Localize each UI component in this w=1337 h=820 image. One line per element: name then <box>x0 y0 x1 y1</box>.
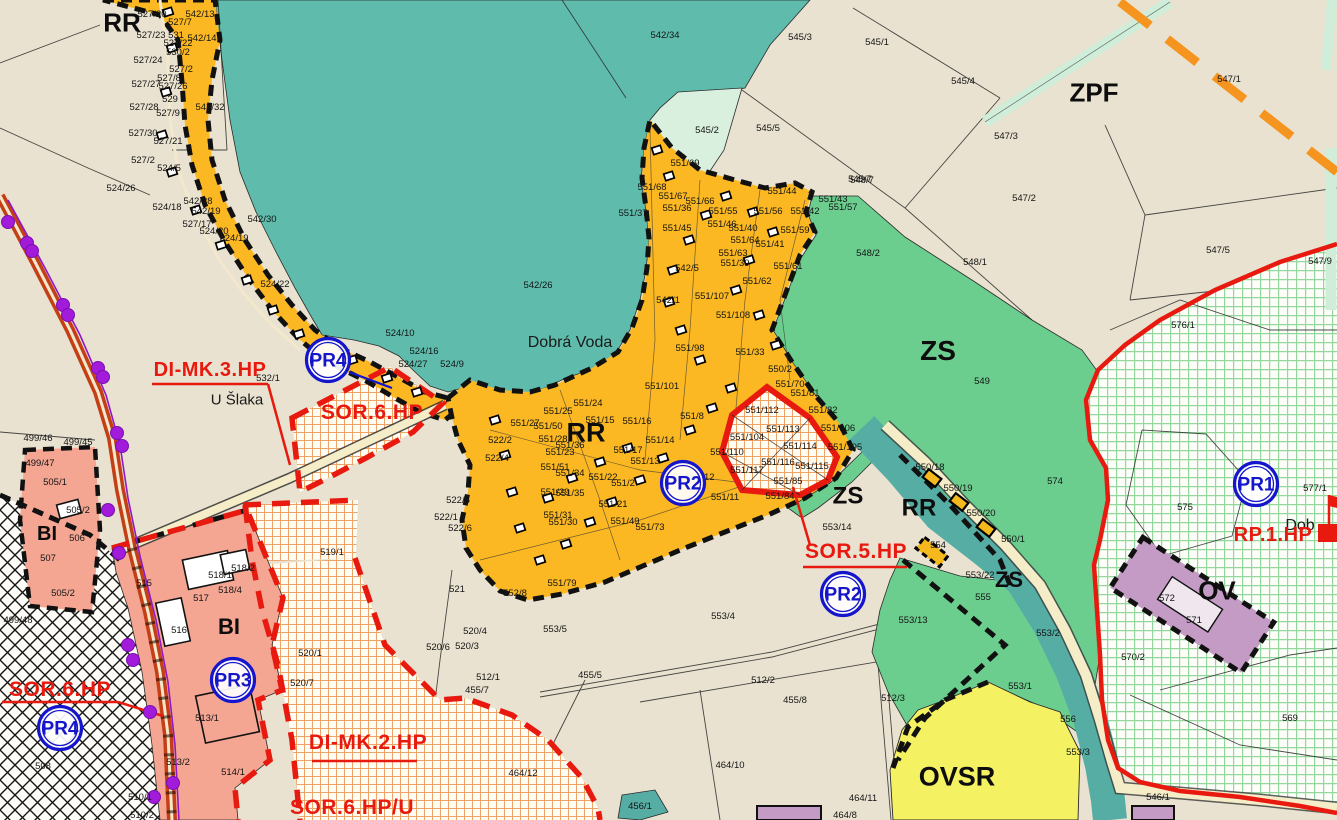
parcel-label: 571 <box>1186 615 1202 626</box>
parcel-label: 527/23 <box>136 30 165 41</box>
parcel-label: 515 <box>136 578 152 589</box>
parcel-label: 527/20 <box>137 9 166 20</box>
parcel-label: 553/13 <box>898 615 927 626</box>
cottage-icon <box>726 383 737 392</box>
parcel-label: 551/37 <box>618 208 647 219</box>
parcel-label: 550/19 <box>943 483 972 494</box>
parcel-label: 542/26 <box>523 280 552 291</box>
parcel-label: 542/32 <box>195 102 224 113</box>
parcel-label: 464/11 <box>849 793 877 804</box>
parcel-label: 551/23 <box>545 447 574 458</box>
parcel-label: 553/5 <box>543 624 567 635</box>
parcel-label: 577/1 <box>1303 483 1327 494</box>
parcel-label: 524/27 <box>398 359 427 370</box>
parcel-label: 570/2 <box>1121 652 1145 663</box>
parcel-label: 499/46 <box>23 433 52 444</box>
utility-dot-icon <box>102 504 115 517</box>
parcel-label: 529 <box>162 94 178 105</box>
parcel-label: 556 <box>1060 714 1076 725</box>
parcel-label: 513/1 <box>195 713 219 724</box>
parcel-label: 550/1 <box>1001 534 1025 545</box>
utility-dot-icon <box>127 654 140 667</box>
parcel-label: 545/1 <box>865 37 889 48</box>
parcel-label: 547/1 <box>1217 74 1241 85</box>
cottage-icon <box>664 171 675 180</box>
parcel-label: 550/18 <box>915 462 944 473</box>
zone-label-zs: ZS <box>833 483 864 510</box>
svg-text:PR4: PR4 <box>310 351 347 372</box>
parcel-label: 551/62 <box>742 276 771 287</box>
zone-label-zs: ZS <box>995 567 1023 592</box>
parcel-label: 551/59 <box>780 225 809 236</box>
parcel-label: 569 <box>1282 713 1298 724</box>
parcel-label: 553/22 <box>965 570 994 581</box>
cottage-icon <box>685 425 696 434</box>
parcel-label: 551/55 <box>708 206 737 217</box>
parcel-label: 551/61 <box>773 261 802 272</box>
parcel-label: 547/2 <box>1012 193 1036 204</box>
cottage-icon <box>515 523 526 532</box>
parcel-label: 505/2 <box>51 588 75 599</box>
parcel-label: 527/7 <box>168 17 192 28</box>
parcel-label: 456/1 <box>628 801 652 812</box>
parcel-label: 551/73 <box>635 522 664 533</box>
parcel-label: 524/26 <box>106 183 135 194</box>
parcel-label: 518/1 <box>208 570 232 581</box>
parcel-label: 548/2 <box>856 248 880 259</box>
zone-label-bi: BI <box>218 614 240 639</box>
plan-label: SOR.6.HP <box>9 678 111 701</box>
parcel-label: 522/6 <box>448 523 472 534</box>
parcel-label: 553/3 <box>1066 747 1090 758</box>
parcel-label: 545/5 <box>756 123 780 134</box>
plan-label: RP.1.HP <box>1234 524 1313 546</box>
cottage-icon <box>768 227 779 236</box>
cottage-icon <box>561 539 572 548</box>
parcel-label: 551/110 <box>710 447 744 458</box>
zone-label-rr: RR <box>103 7 141 37</box>
pr-marker-pr4: PR4 <box>307 339 350 382</box>
parcel-label: 505/2 <box>66 505 90 516</box>
parcel-label: 551/112 <box>745 405 779 416</box>
parcel-label: 530/2 <box>166 47 190 58</box>
parcel-label: 521 <box>449 584 465 595</box>
parcel-label: 510/1 <box>128 792 152 803</box>
parcel-label: 545/3 <box>788 32 812 43</box>
parcel-label: 551/42 <box>790 206 819 217</box>
parcel-label: 546/1 <box>1146 792 1170 803</box>
parcel-label: 548/7 <box>850 175 874 186</box>
zone-label-bi: BI <box>37 523 57 545</box>
parcel-label: 527/26 <box>158 81 187 92</box>
parcel-label: 499/45 <box>63 437 92 448</box>
parcel-label: 513/2 <box>166 757 190 768</box>
plan-label: SOR.6.HP/U <box>290 796 414 819</box>
parcel-label: 551/98 <box>675 343 704 354</box>
parcel-label: 551/115 <box>795 461 829 472</box>
parcel-label: 517 <box>193 593 209 604</box>
parcel-label: 551/69 <box>670 158 699 169</box>
cottage-icon <box>754 310 765 319</box>
parcel-label: 576/1 <box>1171 320 1195 331</box>
parcel-label: 542/34 <box>650 30 679 41</box>
parcel-label: 551/101 <box>645 381 679 392</box>
cottage-icon <box>695 355 706 364</box>
parcel-label: 551/17 <box>613 445 642 456</box>
ov-small-2 <box>1132 806 1174 820</box>
parcel-label: 547/9 <box>1308 256 1332 267</box>
parcel-label: 542/30 <box>247 214 276 225</box>
parcel-label: 499/47 <box>25 458 54 469</box>
parcel-label: 551/13 <box>630 456 659 467</box>
cottage-icon <box>268 305 279 314</box>
parcel-label: 554 <box>930 540 946 551</box>
utility-dot-icon <box>2 216 15 229</box>
cottage-icon <box>382 373 393 382</box>
utility-dot-icon <box>97 371 110 384</box>
parcel-label: 524/5 <box>157 163 181 174</box>
parcel-label: 551/36 <box>662 203 691 214</box>
utility-dot-icon <box>144 706 157 719</box>
cottage-icon <box>507 487 518 496</box>
utility-dot-icon <box>26 245 39 258</box>
parcel-label: 551/44 <box>767 186 796 197</box>
parcel-label: 499/48 <box>3 615 32 626</box>
plan-label: DI-MK.3.HP <box>154 359 267 381</box>
parcel-label: 507 <box>40 553 56 564</box>
parcel-label: 527/21 <box>153 136 182 147</box>
parcel-label: 551/56 <box>753 206 782 217</box>
cottage-icon <box>585 517 596 526</box>
zoning-map: 527/20542/13527/7527/23531542/14527/2253… <box>0 0 1337 820</box>
parcel-label: 551/79 <box>547 578 576 589</box>
ov-small-1 <box>757 806 821 820</box>
parcel-label: 542/5 <box>675 263 699 274</box>
parcel-label: 551/11 <box>711 492 739 503</box>
parcel-label: 551/108 <box>716 310 750 321</box>
parcel-label: 519/1 <box>320 547 344 558</box>
parcel-label: 524/16 <box>409 346 438 357</box>
parcel-label: 551/39 <box>720 258 749 269</box>
parcel-label: 512/1 <box>476 672 500 683</box>
cottage-icon <box>412 387 423 396</box>
parcel-label: 518/2 <box>231 563 255 574</box>
utility-dot-icon <box>167 777 180 790</box>
parcel-label: 551/2 <box>611 478 635 489</box>
parcel-label: 551/40 <box>728 223 757 234</box>
pr-marker-pr2: PR2 <box>662 462 705 505</box>
zone-label-rr: RR <box>567 418 606 448</box>
parcel-label: 551/34 <box>555 468 584 479</box>
parcel-label: 524/19 <box>219 233 248 244</box>
utility-dot-icon <box>62 309 75 322</box>
parcel-label: 548/1 <box>963 257 987 268</box>
place-label: Dobrá Voda <box>528 334 613 351</box>
utility-dot-icon <box>111 427 124 440</box>
cottage-icon <box>535 555 546 564</box>
parcel-label: 551/41 <box>755 239 784 250</box>
place-label: U Šlaka <box>211 391 264 408</box>
parcel-label: 551/21 <box>598 499 627 510</box>
cottage-icon <box>707 403 718 412</box>
pr-marker-pr4: PR4 <box>39 707 82 750</box>
parcel-label: 551/105 <box>828 442 862 453</box>
parcel-label: 551/106 <box>821 423 855 434</box>
parcel-label: 551/33 <box>735 347 764 358</box>
cottage-icon <box>652 145 663 154</box>
svg-text:PR4: PR4 <box>42 719 79 740</box>
parcel-label: 555 <box>975 592 991 603</box>
parcel-label: 514/1 <box>221 767 245 778</box>
parcel-label: 553/1 <box>1008 681 1032 692</box>
pr-marker-pr2: PR2 <box>822 573 865 616</box>
parcel-label: 516 <box>171 625 187 636</box>
utility-dot-icon <box>113 547 126 560</box>
parcel-label: 524/10 <box>385 328 414 339</box>
parcel-label: 575 <box>1177 502 1193 513</box>
parcel-label: 520/7 <box>290 678 314 689</box>
parcel-label: 522/1 <box>434 512 458 523</box>
cottage-icon <box>684 235 695 244</box>
plan-label: SOR.6.HP <box>321 401 423 424</box>
cottage-icon <box>294 329 305 338</box>
parcel-label: 527/24 <box>133 55 162 66</box>
parcel-label: 551/35 <box>555 488 584 499</box>
parcel-label: 574 <box>1047 476 1063 487</box>
parcel-label: 545/4 <box>951 76 975 87</box>
parcel-label: 522/4 <box>485 453 509 464</box>
parcel-label: 551/30 <box>548 517 577 528</box>
zone-label-ov: OV <box>1198 575 1236 605</box>
cottage-icon <box>595 457 606 466</box>
cottage-icon <box>731 285 742 294</box>
parcel-label: 455/7 <box>465 685 489 696</box>
parcel-label: 551/84 <box>765 491 794 502</box>
cottage-icon <box>771 340 782 349</box>
plan-label: DI-MK.2.HP <box>309 731 427 754</box>
cottage-icon <box>676 325 687 334</box>
parcel-label: 551/82 <box>808 405 837 416</box>
parcel-label: 551/113 <box>766 424 800 435</box>
parcel-label: 512/2 <box>751 675 775 686</box>
parcel-label: 522/2 <box>488 435 512 446</box>
pr-marker-pr3: PR3 <box>212 659 255 702</box>
parcel-label: 551/16 <box>622 416 651 427</box>
parcel-label: 551/25 <box>543 406 572 417</box>
parcel-label: 553/14 <box>822 522 851 533</box>
zone-label-ovsr: OVSR <box>919 762 996 792</box>
parcel-label: 512/3 <box>881 693 905 704</box>
parcel-label: 551/24 <box>573 398 602 409</box>
utility-dot-icon <box>122 639 135 652</box>
parcel-label: 520/4 <box>463 626 487 637</box>
parcel-label: 510/2 <box>130 810 154 820</box>
svg-text:PR2: PR2 <box>665 474 702 495</box>
parcel-label: 551/114 <box>783 441 817 452</box>
parcel-label: 551/117 <box>730 465 764 476</box>
cottage-icon <box>635 475 646 484</box>
svg-text:PR1: PR1 <box>1238 475 1275 496</box>
parcel-label: 553/2 <box>1036 628 1060 639</box>
parcel-label: 464/10 <box>715 760 744 771</box>
parcel-label: 527/2 <box>131 155 155 166</box>
parcel-label: 464/12 <box>508 768 537 779</box>
parcel-label: 551/107 <box>695 291 729 302</box>
parcel-label: 455/8 <box>783 695 807 706</box>
svg-text:PR2: PR2 <box>825 585 862 606</box>
parcel-label: 455/5 <box>578 670 602 681</box>
parcel-label: 551/104 <box>730 432 764 443</box>
plan-label: SOR.5.HP <box>805 540 907 563</box>
zone-label-zs: ZS <box>920 335 956 366</box>
parcel-label: 545/2 <box>695 125 719 136</box>
cottage-icon <box>242 275 253 284</box>
parcel-label: 551/14 <box>645 435 674 446</box>
parcel-label: 551/8 <box>680 411 704 422</box>
parcel-label: 550/20 <box>966 508 995 519</box>
parcel-label: 522/5 <box>446 495 470 506</box>
parcel-label: 553/4 <box>711 611 735 622</box>
parcel-label: 464/8 <box>833 810 857 820</box>
parcel-label: 550/2 <box>768 364 792 375</box>
parcel-label: 551/67 <box>658 191 687 202</box>
utility-dot-icon <box>116 440 129 453</box>
cottage-icon <box>490 415 501 424</box>
parcel-label: 551/57 <box>828 202 857 213</box>
parcel-label: 542/1 <box>656 295 680 306</box>
svg-text:PR3: PR3 <box>215 671 252 692</box>
parcel-label: 520/6 <box>426 642 450 653</box>
parcel-label: 551/50 <box>533 421 562 432</box>
parcel-label: 552/8 <box>503 588 527 599</box>
zone-label-zpf: ZPF <box>1069 77 1118 107</box>
parcel-label: 520/3 <box>455 641 479 652</box>
parcel-label: 524/22 <box>260 279 289 290</box>
parcel-label: 505/1 <box>43 477 67 488</box>
parcel-label: 506 <box>69 533 85 544</box>
parcel-label: 527/28 <box>129 102 158 113</box>
parcel-label: 547/5 <box>1206 245 1230 256</box>
parcel-label: 524/18 <box>152 202 181 213</box>
parcel-label: 508 <box>35 761 51 772</box>
parcel-label: 551/116 <box>761 457 795 468</box>
map-canvas: 527/20542/13527/7527/23531542/14527/2253… <box>0 0 1337 820</box>
parcel-label: 547/3 <box>994 131 1018 142</box>
parcel-label: 524/9 <box>440 359 464 370</box>
parcel-label: 518/4 <box>218 585 242 596</box>
parcel-label: 551/81 <box>790 388 819 399</box>
parcel-label: 551/45 <box>662 223 691 234</box>
parcel-label: 542/19 <box>191 206 220 217</box>
parcel-label: 549 <box>974 376 990 387</box>
pr-marker-pr1: PR1 <box>1235 463 1278 506</box>
parcel-label: 520/1 <box>298 648 322 659</box>
parcel-label: 572 <box>1159 593 1175 604</box>
parcel-label: 551/85 <box>773 476 802 487</box>
parcel-label: 527/27 <box>131 79 160 90</box>
zone-label-rr: RR <box>902 495 937 522</box>
parcel-label: 527/9 <box>156 108 180 119</box>
cottage-icon <box>721 191 732 200</box>
